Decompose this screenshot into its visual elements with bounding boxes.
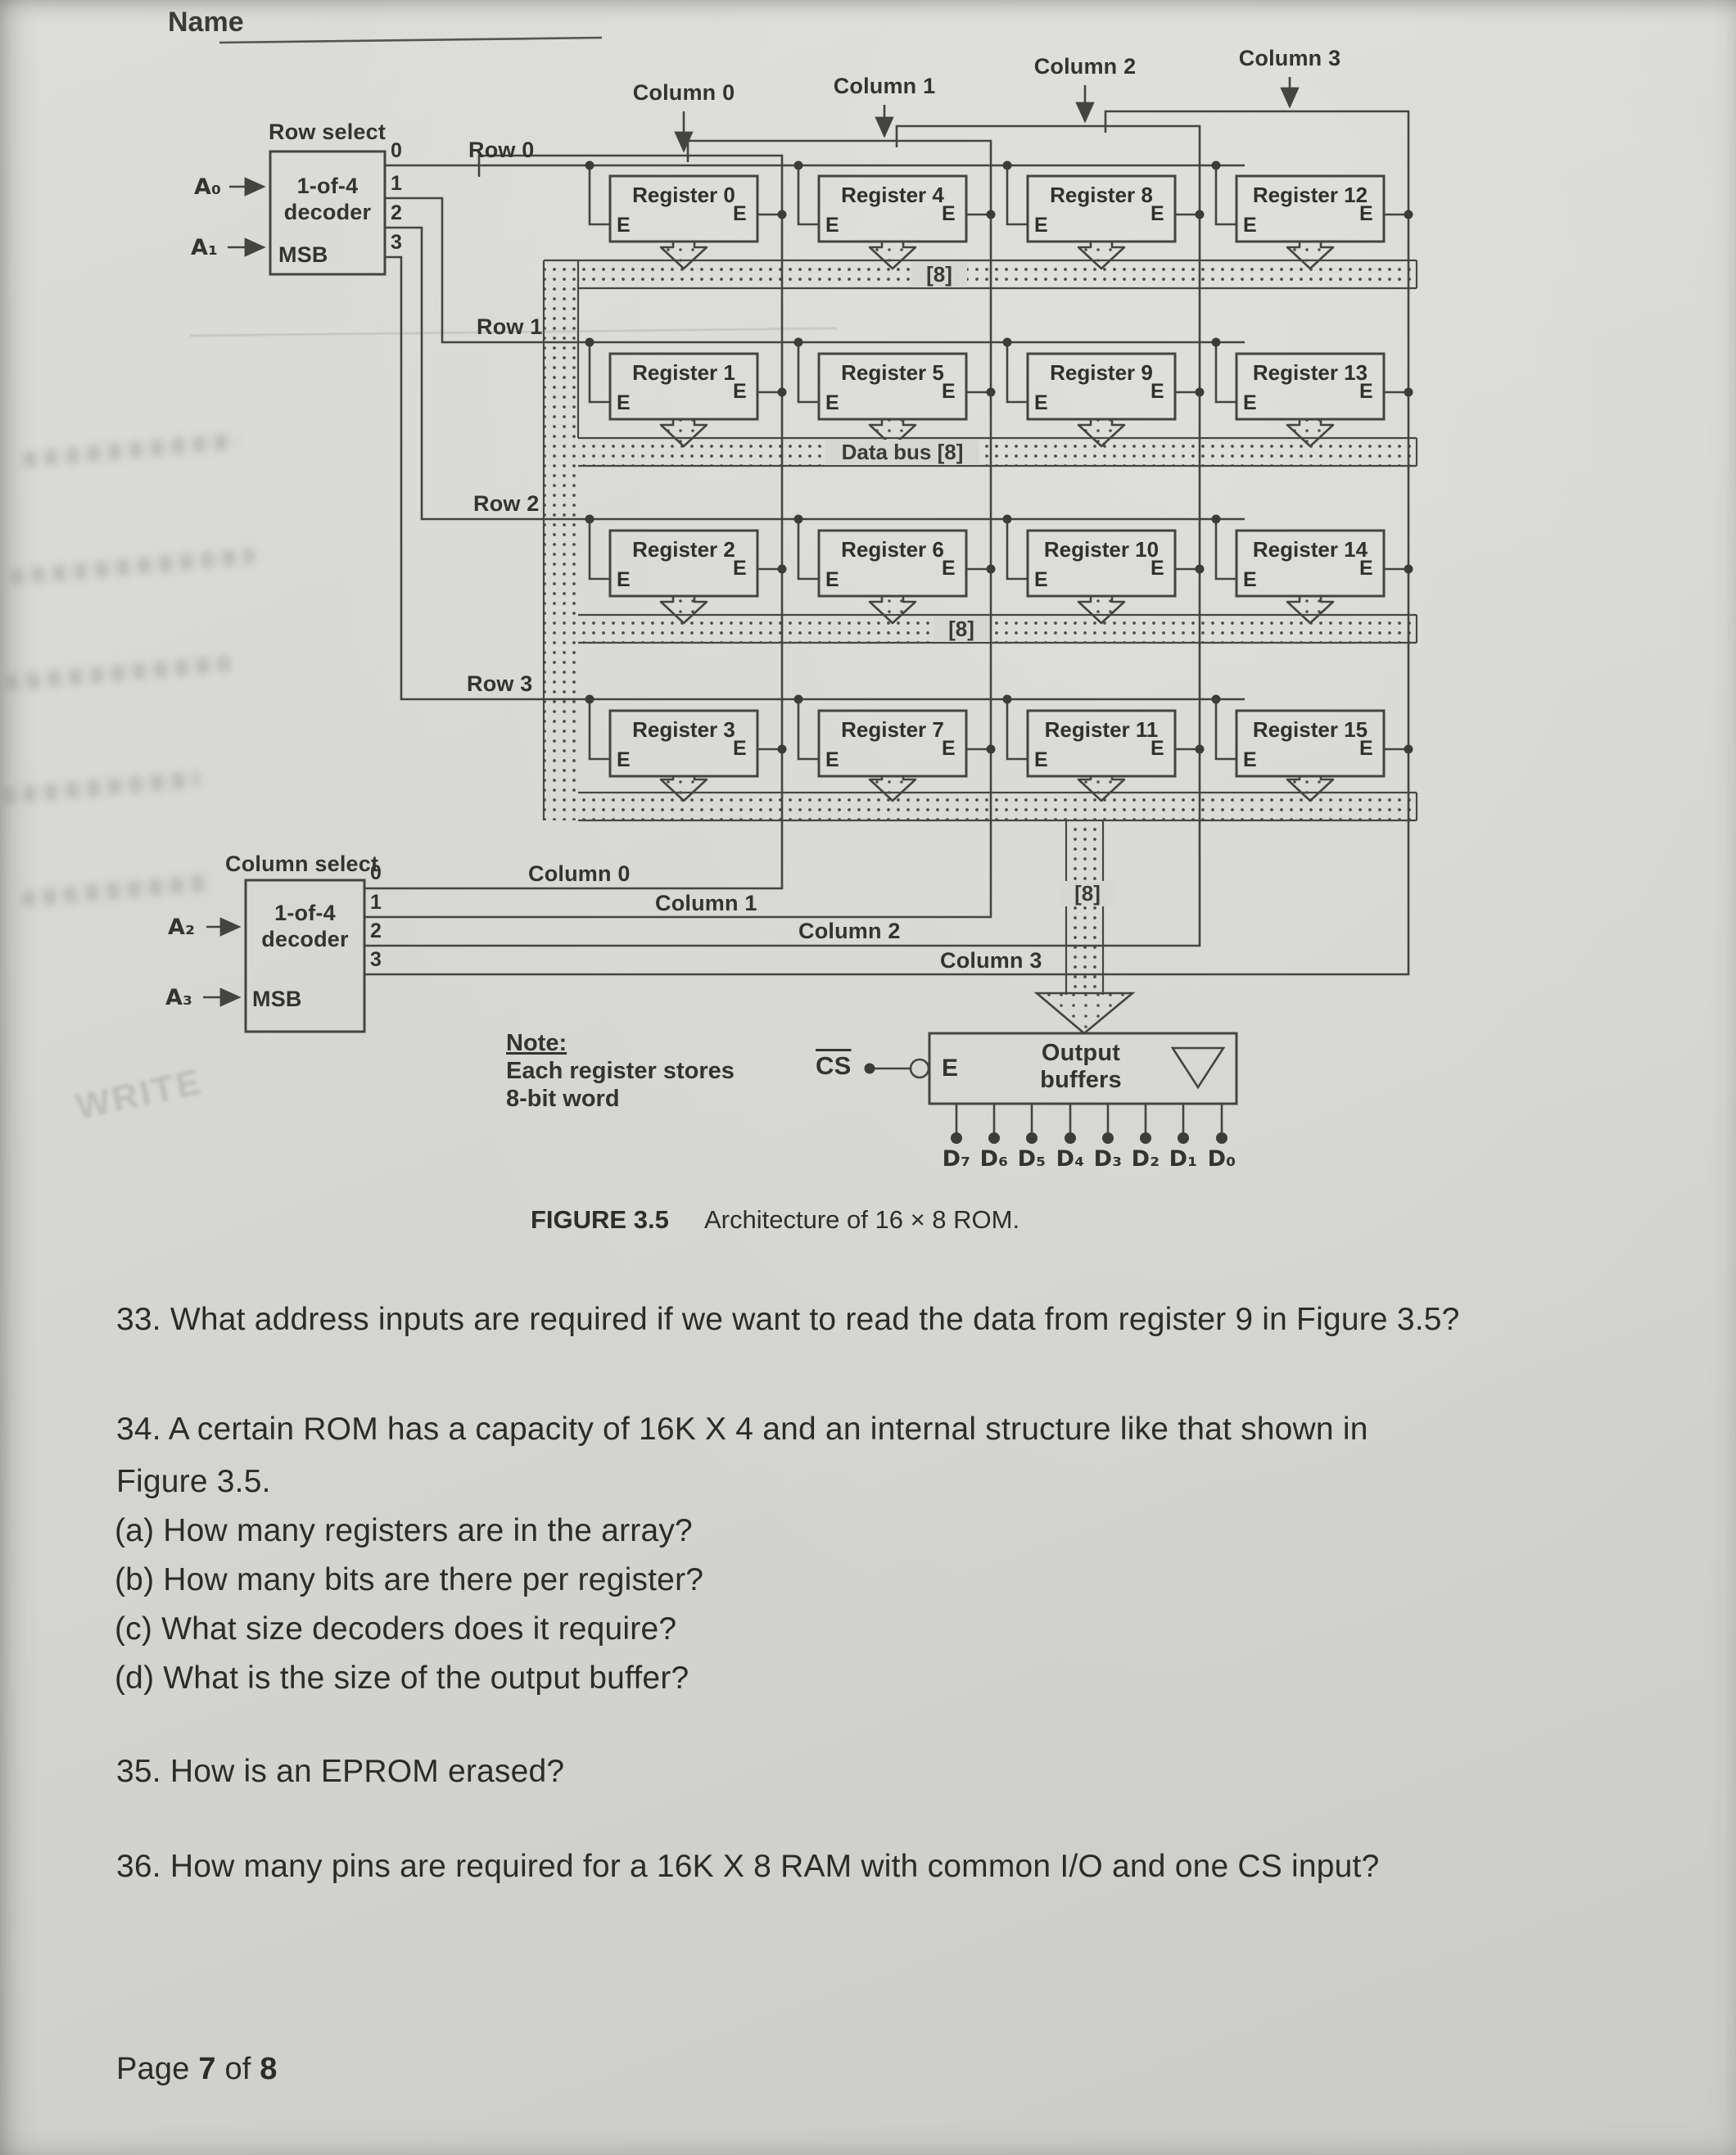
enable-label: E xyxy=(733,737,747,761)
name-blank-line xyxy=(219,38,602,43)
enable-label: E xyxy=(825,568,839,592)
row-select-title: Row select xyxy=(269,120,386,145)
row-1-label: Row 1 xyxy=(477,314,543,340)
row-decoder-out-0: 0 xyxy=(391,139,402,163)
note-line2: 8-bit word xyxy=(506,1086,620,1113)
question-33: 33. What address inputs are required if … xyxy=(116,1302,1460,1338)
enable-label: E xyxy=(1243,748,1257,772)
enable-label: E xyxy=(1243,391,1257,415)
row-decoder-out-3: 3 xyxy=(391,231,402,255)
enable-label: E xyxy=(1359,380,1373,404)
column-0-header: Column 0 xyxy=(631,80,737,106)
enable-label: E xyxy=(942,202,956,226)
column-0-line-label: Column 0 xyxy=(528,861,631,887)
address-input-a3: A₃ xyxy=(165,985,192,1010)
row-2-label: Row 2 xyxy=(473,491,540,517)
enable-label: E xyxy=(1359,202,1373,226)
enable-label: E xyxy=(942,737,956,761)
enable-label: E xyxy=(1151,380,1164,404)
data-bus-label: Data bus [8] xyxy=(825,440,979,465)
tristate-triangle-icon xyxy=(1173,1048,1223,1087)
enable-label: E xyxy=(617,391,631,415)
enable-label: E xyxy=(617,748,631,772)
bus-arrow-to-output xyxy=(1037,993,1132,1033)
enable-label: E xyxy=(1243,214,1257,237)
address-input-a1: A₁ xyxy=(191,235,218,260)
question-35: 35. How is an EPROM erased? xyxy=(116,1754,564,1790)
figure-caption-tag: FIGURE 3.5 xyxy=(531,1205,669,1235)
data-output-d5: D₅ xyxy=(1015,1146,1048,1172)
column-decoder-out-2: 2 xyxy=(370,919,382,943)
question-36: 36. How many pins are required for a 16K… xyxy=(116,1849,1379,1885)
column-enable-wires xyxy=(757,215,1408,749)
enable-label: E xyxy=(1034,214,1048,237)
data-output-d1: D₁ xyxy=(1167,1146,1200,1172)
column-decoder-line1: 1-of-4 xyxy=(246,901,364,926)
footer-page-number: 7 xyxy=(198,2052,215,2086)
enable-label: E xyxy=(1359,557,1373,581)
enable-label: E xyxy=(825,748,839,772)
enable-label: E xyxy=(1151,202,1164,226)
question-34-line2: Figure 3.5. xyxy=(116,1464,271,1500)
junction-dots xyxy=(585,161,1413,1145)
data-output-d4: D₄ xyxy=(1054,1146,1087,1172)
figure-caption-text: Architecture of 16 × 8 ROM. xyxy=(704,1205,1019,1235)
data-output-d3: D₃ xyxy=(1092,1146,1124,1172)
column-decoder-out-1: 1 xyxy=(370,891,382,915)
column-3-line-label: Column 3 xyxy=(940,948,1042,974)
column-decoder-out-3: 3 xyxy=(370,948,382,972)
row-decoder-line1: 1-of-4 xyxy=(270,174,385,199)
bus-width-label: [8] xyxy=(1060,881,1115,906)
address-input-a2: A₂ xyxy=(168,915,195,940)
enable-label: E xyxy=(733,202,747,226)
enable-label: E xyxy=(617,214,631,237)
scanned-worksheet-page: WRITE xyxy=(0,0,1736,2155)
name-label: Name xyxy=(168,7,244,38)
data-output-d6: D₆ xyxy=(978,1146,1010,1172)
row-decoder-out-2: 2 xyxy=(391,201,402,225)
enable-label: E xyxy=(1151,557,1164,581)
column-decoder-line2: decoder xyxy=(246,927,364,952)
question-34c: (c) What size decoders does it require? xyxy=(115,1611,676,1647)
enable-bubble xyxy=(911,1059,929,1077)
enable-label: E xyxy=(825,391,839,415)
enable-label: E xyxy=(617,568,631,592)
enable-label: E xyxy=(1151,737,1164,761)
bus-width-label: [8] xyxy=(911,262,967,287)
enable-label: E xyxy=(1359,737,1373,761)
data-output-d0: D₀ xyxy=(1205,1146,1238,1172)
column-decoder-msb: MSB xyxy=(252,987,302,1012)
column-select-title: Column select xyxy=(225,852,378,877)
enable-label: E xyxy=(733,557,747,581)
column-2-header: Column 2 xyxy=(1032,54,1138,79)
footer-prefix: Page xyxy=(116,2052,190,2086)
row-3-label: Row 3 xyxy=(467,671,533,697)
enable-label: E xyxy=(1034,391,1048,415)
column-decoder-out-0: 0 xyxy=(370,861,382,885)
column-1-header: Column 1 xyxy=(831,74,938,99)
enable-label: E xyxy=(825,214,839,237)
page-footer: Page 7 of 8 xyxy=(116,2052,278,2087)
enable-label: E xyxy=(942,380,956,404)
column-2-line-label: Column 2 xyxy=(798,919,901,944)
row-decoder-line2: decoder xyxy=(270,200,385,225)
data-output-d2: D₂ xyxy=(1129,1146,1162,1172)
enable-label: E xyxy=(1243,568,1257,592)
question-34-line1: 34. A certain ROM has a capacity of 16K … xyxy=(116,1412,1368,1448)
note-title: Note: xyxy=(506,1030,567,1057)
footer-of: of xyxy=(224,2052,251,2086)
question-34d: (d) What is the size of the output buffe… xyxy=(115,1660,689,1696)
output-buffers-line2: buffers xyxy=(1015,1067,1146,1094)
register-output-arrows xyxy=(661,242,1333,801)
cs-label: CS xyxy=(816,1051,851,1081)
bus-width-label: [8] xyxy=(934,617,989,642)
rom-architecture-diagram xyxy=(0,0,1736,2155)
column-1-line-label: Column 1 xyxy=(655,891,757,916)
data-output-d7: D₇ xyxy=(940,1146,973,1172)
row-decoder-out-1: 1 xyxy=(391,172,402,196)
question-34b: (b) How many bits are there per register… xyxy=(115,1562,703,1598)
output-buffers-enable: E xyxy=(942,1055,958,1082)
footer-total-pages: 8 xyxy=(260,2052,277,2086)
enable-label: E xyxy=(733,380,747,404)
note-line1: Each register stores xyxy=(506,1058,735,1085)
column-3-header: Column 3 xyxy=(1236,46,1343,71)
enable-label: E xyxy=(1034,568,1048,592)
address-input-a0: A₀ xyxy=(194,174,221,200)
question-34a: (a) How many registers are in the array? xyxy=(115,1513,693,1549)
output-buffers-line1: Output xyxy=(1015,1040,1146,1067)
data-output-stubs xyxy=(956,1104,1222,1135)
row-decoder-msb: MSB xyxy=(278,242,328,268)
enable-label: E xyxy=(1034,748,1048,772)
enable-label: E xyxy=(942,557,956,581)
row-0-label: Row 0 xyxy=(468,138,535,163)
